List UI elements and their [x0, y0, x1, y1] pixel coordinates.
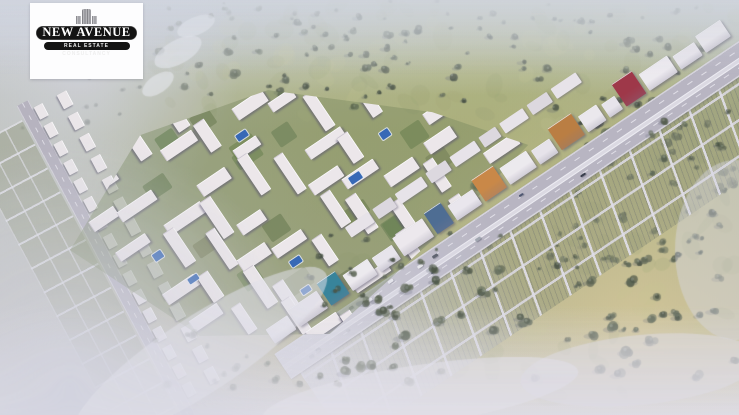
townhouse [142, 307, 157, 324]
brand-name: NEW AVENUE [36, 26, 137, 40]
townhouse [34, 103, 49, 120]
masterplan-aerial-render: NEW AVENUE REAL ESTATE CONSULTANCY [0, 0, 739, 415]
townhouse [172, 362, 187, 379]
building-tower [82, 9, 91, 24]
townhouse [53, 140, 68, 157]
townhouse [152, 325, 167, 342]
brand-tagline: REAL ESTATE CONSULTANCY [44, 42, 130, 50]
building-skyline-icon [76, 8, 97, 24]
building-wing-left [76, 16, 81, 24]
townhouse [181, 381, 196, 398]
townhouse [162, 344, 177, 361]
townhouse [63, 158, 78, 175]
brand-watermark: NEW AVENUE REAL ESTATE CONSULTANCY [30, 3, 143, 79]
townhouse [43, 121, 58, 138]
building-wing-right [92, 16, 97, 24]
townhouse [73, 177, 88, 194]
